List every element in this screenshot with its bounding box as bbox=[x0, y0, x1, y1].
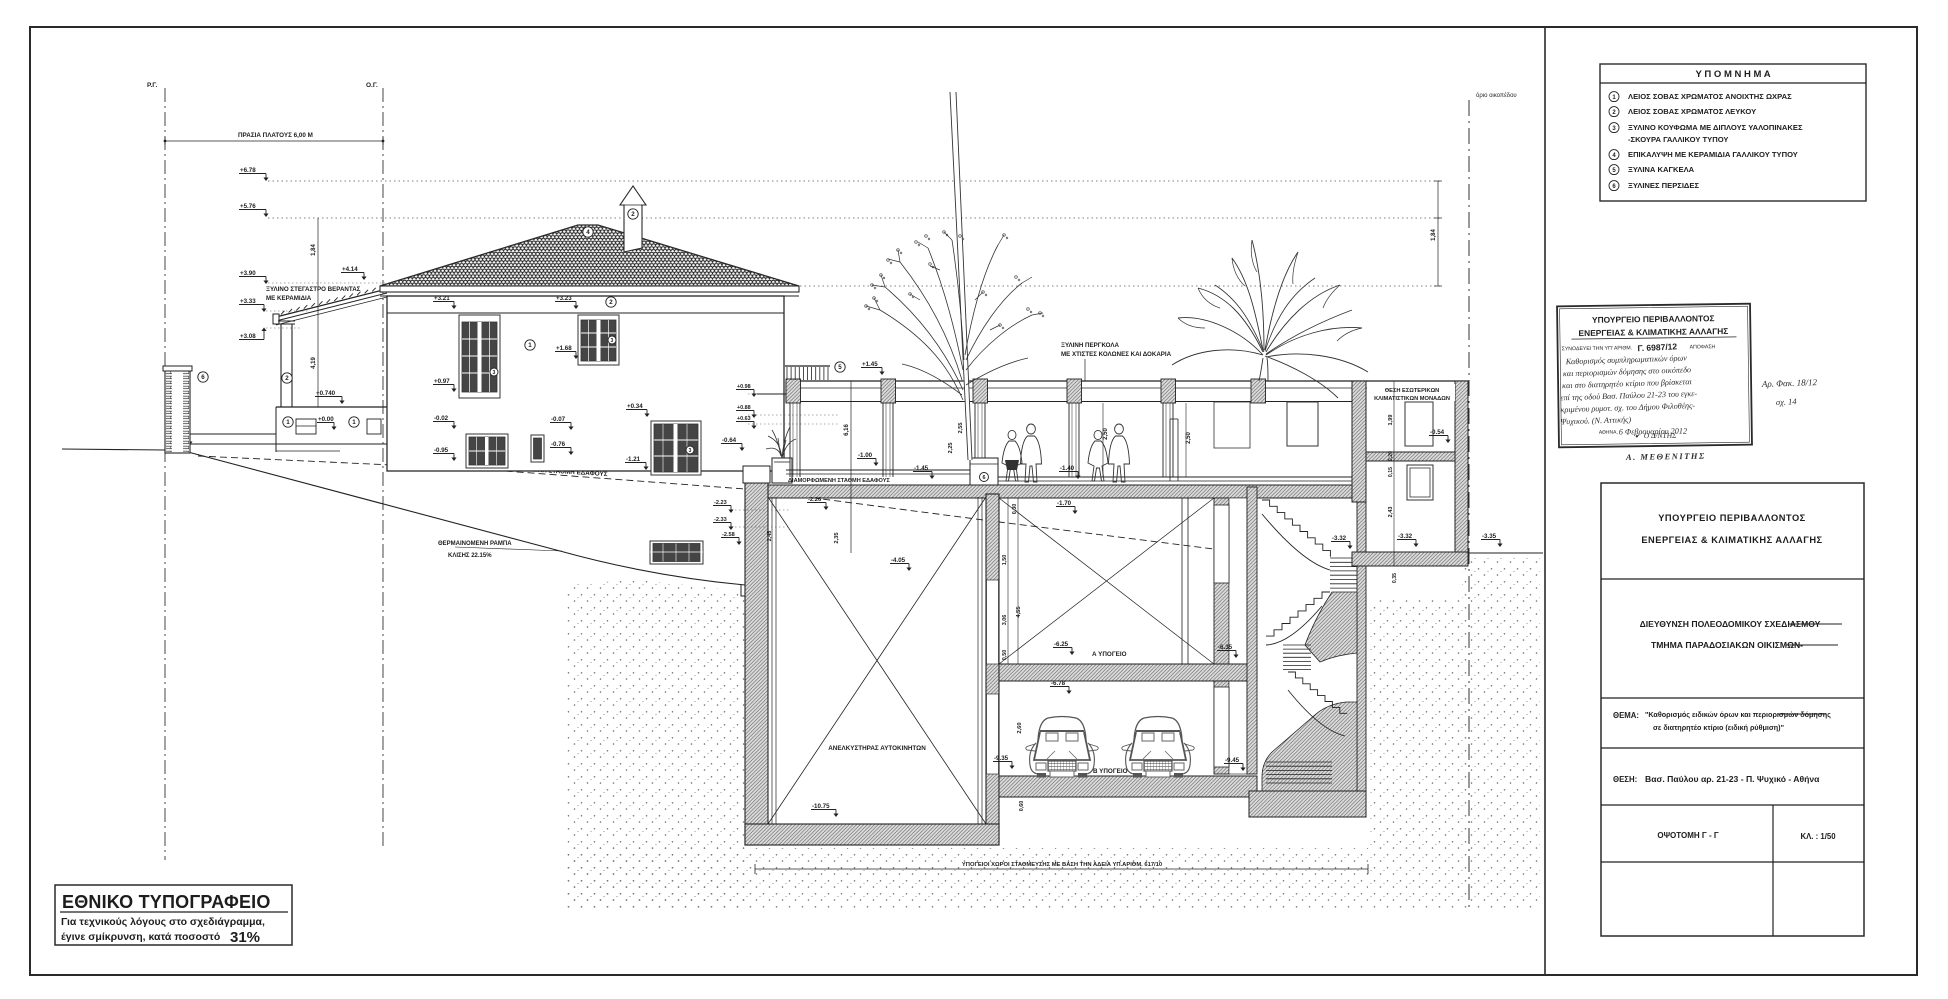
svg-text:ΚΛ. : 1/50: ΚΛ. : 1/50 bbox=[1800, 832, 1836, 841]
svg-text:ΠΡΑΣΙΑ ΠΛΑΤΟΥΣ 6,00 Μ: ΠΡΑΣΙΑ ΠΛΑΤΟΥΣ 6,00 Μ bbox=[238, 132, 313, 139]
svg-text:0,35: 0,35 bbox=[1392, 573, 1398, 583]
svg-text:2,35: 2,35 bbox=[834, 532, 840, 544]
svg-text:+0.740: +0.740 bbox=[316, 390, 336, 397]
svg-text:+3.08: +3.08 bbox=[240, 333, 256, 340]
svg-text:ΤΜΗΜΑ ΠΑΡΑΔΟΣΙΑΚΩΝ ΟΙΚΙΣΜΩΝ-: ΤΜΗΜΑ ΠΑΡΑΔΟΣΙΑΚΩΝ ΟΙΚΙΣΜΩΝ- bbox=[1651, 640, 1803, 650]
svg-text:0,50: 0,50 bbox=[1002, 650, 1008, 661]
svg-text:-10.75: -10.75 bbox=[812, 803, 830, 810]
svg-text:ΣΥΝΟΔΕΥΕΙ ΤΗΝ ΥΠ' ΑΡΙΘΜ.: ΣΥΝΟΔΕΥΕΙ ΤΗΝ ΥΠ' ΑΡΙΘΜ. bbox=[1562, 345, 1633, 352]
svg-text:+0.97: +0.97 bbox=[434, 378, 450, 385]
svg-text:2,25: 2,25 bbox=[948, 443, 954, 454]
svg-text:+3.33: +3.33 bbox=[240, 298, 256, 305]
svg-text:-1.21: -1.21 bbox=[626, 456, 641, 463]
svg-text:31%: 31% bbox=[230, 929, 260, 946]
svg-text:-4.05: -4.05 bbox=[891, 557, 906, 564]
svg-text:Β ΥΠΟΓΕΙΟ: Β ΥΠΟΓΕΙΟ bbox=[1093, 768, 1128, 775]
svg-text:4,55: 4,55 bbox=[1016, 606, 1022, 618]
svg-text:3,06: 3,06 bbox=[1002, 615, 1008, 626]
svg-text:2,60: 2,60 bbox=[1017, 722, 1023, 733]
svg-text:ΞΥΛΙΝΟ ΚΟΥΦΩΜΑ ΜΕ ΔΙΠΛΟΥΣ ΥΑΛΟ: ΞΥΛΙΝΟ ΚΟΥΦΩΜΑ ΜΕ ΔΙΠΛΟΥΣ ΥΑΛΟΠΙΝΑΚΕΣ bbox=[1628, 123, 1803, 132]
svg-text:ΞΥΛΙΝΕΣ ΠΕΡΣΙΔΕΣ: ΞΥΛΙΝΕΣ ΠΕΡΣΙΔΕΣ bbox=[1628, 181, 1699, 190]
svg-text:1: 1 bbox=[286, 419, 290, 426]
svg-text:-6.78: -6.78 bbox=[1051, 680, 1066, 687]
svg-text:1,84: 1,84 bbox=[311, 244, 317, 256]
svg-text:ΞΥΛΙΝΑ ΚΑΓΚΕΛΑ: ΞΥΛΙΝΑ ΚΑΓΚΕΛΑ bbox=[1628, 165, 1695, 174]
svg-text:1,50: 1,50 bbox=[1002, 555, 1008, 566]
svg-text:ΘΕΡΜΑΙΝΟΜΕΝΗ ΡΑΜΠΑ: ΘΕΡΜΑΙΝΟΜΕΝΗ ΡΑΜΠΑ bbox=[438, 541, 512, 547]
svg-text:ΕΘΝΙΚΟ ΤΥΠΟΓΡΑΦΕΙΟ: ΕΘΝΙΚΟ ΤΥΠΟΓΡΑΦΕΙΟ bbox=[62, 892, 271, 912]
svg-text:Αρ. Φακ. 18/12: Αρ. Φακ. 18/12 bbox=[1761, 377, 1818, 389]
svg-text:ΑΝΕΛΚΥΣΤΗΡΑΣ ΑΥΤΟΚΙΝΗΤΩΝ: ΑΝΕΛΚΥΣΤΗΡΑΣ ΑΥΤΟΚΙΝΗΤΩΝ bbox=[828, 745, 926, 752]
svg-text:ΛΕΙΟΣ ΣΟΒΑΣ ΧΡΩΜΑΤΟΣ ΑΝΟΙΧΤΗΣ: ΛΕΙΟΣ ΣΟΒΑΣ ΧΡΩΜΑΤΟΣ ΑΝΟΙΧΤΗΣ ΩΧΡΑΣ bbox=[1628, 92, 1792, 101]
svg-text:2,55: 2,55 bbox=[958, 423, 964, 434]
svg-text:ΥΠΟΓΕΙΟΙ ΧΩΡΟΙ ΣΤΑΘΜΕΥΣΗΣ ΜΕ Β: ΥΠΟΓΕΙΟΙ ΧΩΡΟΙ ΣΤΑΘΜΕΥΣΗΣ ΜΕ ΒΑΣΗ ΤΗΝ ΑΔ… bbox=[962, 862, 1162, 868]
svg-text:Βασ. Παύλου αρ. 21-23 - Π.: Βασ. Παύλου αρ. 21-23 - Π. Ψυχικό - Αθήν… bbox=[1645, 774, 1820, 784]
svg-text:2: 2 bbox=[285, 375, 289, 382]
svg-text:1: 1 bbox=[528, 342, 532, 349]
svg-text:0,30: 0,30 bbox=[1012, 504, 1018, 515]
svg-text:ΕΠΙΚΑΛΥΨΗ ΜΕ ΚΕΡΑΜΙΔΙΑ ΓΑΛΛΙΚΟ: ΕΠΙΚΑΛΥΨΗ ΜΕ ΚΕΡΑΜΙΔΙΑ ΓΑΛΛΙΚΟΥ ΤΥΠΟΥ bbox=[1628, 150, 1798, 159]
svg-text:+3.23: +3.23 bbox=[556, 295, 572, 302]
svg-text:Για τεχνικούς λόγους στο σχεδι: Για τεχνικούς λόγους στο σχεδιάγραμμα, bbox=[61, 916, 265, 928]
svg-text:ΜΕ ΧΤΙΣΤΕΣ ΚΟΛΩΝΕΣ ΚΑΙ ΔΟΚΑΡΙΑ: ΜΕ ΧΤΙΣΤΕΣ ΚΟΛΩΝΕΣ ΚΑΙ ΔΟΚΑΡΙΑ bbox=[1061, 351, 1172, 358]
svg-text:0,20: 0,20 bbox=[1388, 451, 1394, 461]
svg-text:-3.32: -3.32 bbox=[1398, 533, 1413, 540]
svg-text:-0.76: -0.76 bbox=[551, 441, 566, 448]
svg-text:Ο.Γ.: Ο.Γ. bbox=[366, 82, 378, 89]
svg-text:3: 3 bbox=[493, 370, 496, 376]
svg-text:ΔΙΑΜΟΡΦΩΜΕΝΗ ΣΤΑΘΜΗ ΕΔΑΦΟΥΣ: ΔΙΑΜΟΡΦΩΜΕΝΗ ΣΤΑΘΜΗ ΕΔΑΦΟΥΣ bbox=[788, 478, 890, 484]
svg-text:ΕΝΕΡΓΕΙΑΣ & ΚΛΙΜΑΤΙΚΗΣ ΑΛΛ: ΕΝΕΡΓΕΙΑΣ & ΚΛΙΜΑΤΙΚΗΣ ΑΛΛΑΓΗΣ bbox=[1578, 326, 1728, 338]
svg-text:1,84: 1,84 bbox=[1431, 229, 1437, 241]
svg-text:5: 5 bbox=[838, 364, 842, 371]
svg-text:+6.78: +6.78 bbox=[240, 167, 256, 174]
svg-text:-0.54: -0.54 bbox=[1430, 429, 1445, 436]
svg-text:+1.68: +1.68 bbox=[556, 345, 572, 352]
svg-text:-ΣΚΟΥΡΑ ΓΑΛΛΙΚΟΥ ΤΥΠΟΥ: -ΣΚΟΥΡΑ ΓΑΛΛΙΚΟΥ ΤΥΠΟΥ bbox=[1628, 135, 1729, 144]
svg-text:-1.40: -1.40 bbox=[1060, 465, 1075, 472]
svg-text:έγινε σμίκρυνση, κατά ποσοστό: έγινε σμίκρυνση, κατά ποσοστό bbox=[61, 931, 220, 943]
svg-text:1,99: 1,99 bbox=[1388, 415, 1394, 426]
svg-text:0,15: 0,15 bbox=[1388, 467, 1394, 477]
svg-text:ΟΨΟΤΟΜΗ Γ - Γ: ΟΨΟΤΟΜΗ Γ - Γ bbox=[1657, 831, 1718, 840]
svg-text:2,50: 2,50 bbox=[1103, 428, 1109, 440]
svg-text:σχ. 14: σχ. 14 bbox=[1776, 396, 1798, 407]
svg-text:4,19: 4,19 bbox=[311, 357, 317, 369]
svg-text:-9.45: -9.45 bbox=[1225, 757, 1240, 764]
svg-text:ΞΥΛΙΝΟ ΣΤΕΓΑΣΤΡΟ ΒΕΡΑΝΤΑΣ: ΞΥΛΙΝΟ ΣΤΕΓΑΣΤΡΟ ΒΕΡΑΝΤΑΣ bbox=[266, 286, 361, 293]
svg-text:ΥΠΟΥΡΓΕΙΟ ΠΕΡΙΒΑΛΛΟΝΤΟΣ: ΥΠΟΥΡΓΕΙΟ ΠΕΡΙΒΑΛΛΟΝΤΟΣ bbox=[1592, 313, 1715, 325]
svg-text:0,60: 0,60 bbox=[1019, 801, 1025, 812]
svg-text:-6.35: -6.35 bbox=[1218, 644, 1233, 651]
svg-text:ΘΕΣΗ ΕΣΩΤΕΡΙΚΩΝ: ΘΕΣΗ ΕΣΩΤΕΡΙΚΩΝ bbox=[1385, 388, 1440, 394]
svg-text:6: 6 bbox=[201, 374, 205, 381]
svg-text:-1.45: -1.45 bbox=[914, 465, 929, 472]
svg-text:+3.21: +3.21 bbox=[434, 295, 450, 302]
svg-text:-0.95: -0.95 bbox=[434, 447, 449, 454]
svg-text:ΘΕΣΗ:: ΘΕΣΗ: bbox=[1613, 775, 1637, 784]
svg-text:2,43: 2,43 bbox=[1388, 507, 1394, 518]
svg-text:ΑΘΗΝΑ,: ΑΘΗΝΑ, bbox=[1599, 430, 1618, 436]
svg-text:ΑΠΟΦΑΣΗ: ΑΠΟΦΑΣΗ bbox=[1690, 344, 1716, 350]
svg-text:+5.76: +5.76 bbox=[240, 203, 256, 210]
svg-text:1: 1 bbox=[352, 419, 356, 426]
svg-text:-1.70: -1.70 bbox=[1057, 500, 1072, 507]
svg-text:-6.25: -6.25 bbox=[1054, 641, 1069, 648]
svg-text:ΥΠΟΥΡΓΕΙΟ ΠΕΡΙΒΑΛΛΟΝΤΟΣ: ΥΠΟΥΡΓΕΙΟ ΠΕΡΙΒΑΛΛΟΝΤΟΣ bbox=[1658, 513, 1806, 523]
svg-text:ΛΕΙΟΣ ΣΟΒΑΣ ΧΡΩΜΑΤΟΣ ΛΕΥΚΟΥ: ΛΕΙΟΣ ΣΟΒΑΣ ΧΡΩΜΑΤΟΣ ΛΕΥΚΟΥ bbox=[1628, 107, 1756, 116]
svg-text:Υ Π Ο Μ Ν Η Μ Α: Υ Π Ο Μ Ν Η Μ Α bbox=[1695, 69, 1770, 80]
svg-text:3: 3 bbox=[611, 338, 614, 344]
svg-text:6: 6 bbox=[983, 475, 986, 481]
svg-text:-3.32: -3.32 bbox=[1332, 535, 1347, 542]
svg-text:-3.35: -3.35 bbox=[1482, 533, 1497, 540]
svg-text:2: 2 bbox=[609, 299, 613, 306]
svg-text:ΕΝΕΡΓΕΙΑΣ & ΚΛΙΜΑΤΙΚΗΣ ΑΛΛΑΓΗΣ: ΕΝΕΡΓΕΙΑΣ & ΚΛΙΜΑΤΙΚΗΣ ΑΛΛΑΓΗΣ bbox=[1641, 535, 1822, 545]
svg-text:όριο οικοπέδου: όριο οικοπέδου bbox=[1476, 92, 1517, 99]
svg-text:2: 2 bbox=[631, 211, 635, 218]
svg-text:+3.90: +3.90 bbox=[240, 270, 256, 277]
svg-text:Γ. 6987/12: Γ. 6987/12 bbox=[1637, 341, 1677, 353]
svg-text:+4.14: +4.14 bbox=[342, 266, 358, 273]
svg-text:ΚΛΙΣΗΣ 22.15%: ΚΛΙΣΗΣ 22.15% bbox=[448, 553, 492, 559]
svg-text:ΜΕ ΚΕΡΑΜΙΔΙΑ: ΜΕ ΚΕΡΑΜΙΔΙΑ bbox=[266, 295, 312, 302]
svg-text:-0.02: -0.02 bbox=[434, 415, 449, 422]
svg-text:4: 4 bbox=[586, 229, 590, 236]
svg-text:ΚΛΙΜΑΤΙΣΤΙΚΩΝ ΜΟΝΑΔΩΝ: ΚΛΙΜΑΤΙΣΤΙΚΩΝ ΜΟΝΑΔΩΝ bbox=[1374, 396, 1450, 402]
svg-text:-9.35: -9.35 bbox=[994, 755, 1009, 762]
svg-text:2,45: 2,45 bbox=[767, 531, 773, 542]
svg-text:Ρ.Γ.: Ρ.Γ. bbox=[147, 82, 158, 89]
svg-text:Ο Δ/ΝΤΗΣ: Ο Δ/ΝΤΗΣ bbox=[1644, 431, 1677, 440]
svg-text:ΞΥΛΙΝΗ ΠΕΡΓΚΟΛΑ: ΞΥΛΙΝΗ ΠΕΡΓΚΟΛΑ bbox=[1061, 342, 1119, 349]
svg-text:6,16: 6,16 bbox=[844, 424, 850, 436]
svg-text:2,50: 2,50 bbox=[1186, 432, 1192, 444]
svg-text:"Καθορισμός ειδικών όρων και π: "Καθορισμός ειδικών όρων και περιορισμών… bbox=[1645, 710, 1831, 719]
svg-text:-0.64: -0.64 bbox=[722, 437, 737, 444]
svg-text:-1.00: -1.00 bbox=[858, 452, 873, 459]
svg-text:ΘΕΜΑ:: ΘΕΜΑ: bbox=[1613, 711, 1639, 720]
svg-text:-0.07: -0.07 bbox=[551, 416, 566, 423]
svg-text:Α ΥΠΟΓΕΙΟ: Α ΥΠΟΓΕΙΟ bbox=[1092, 651, 1127, 658]
svg-text:+1.45: +1.45 bbox=[862, 361, 878, 368]
svg-text:3: 3 bbox=[689, 448, 692, 454]
svg-text:+0.00: +0.00 bbox=[318, 416, 334, 423]
svg-text:Α. ΜΕΘΕΝΙΤΗΣ: Α. ΜΕΘΕΝΙΤΗΣ bbox=[1625, 451, 1706, 462]
svg-text:+0.34: +0.34 bbox=[627, 403, 643, 410]
svg-text:σε διατηρητέο κτίριο (ειδική ρ: σε διατηρητέο κτίριο (ειδική ρύθμιση)" bbox=[1653, 723, 1784, 732]
